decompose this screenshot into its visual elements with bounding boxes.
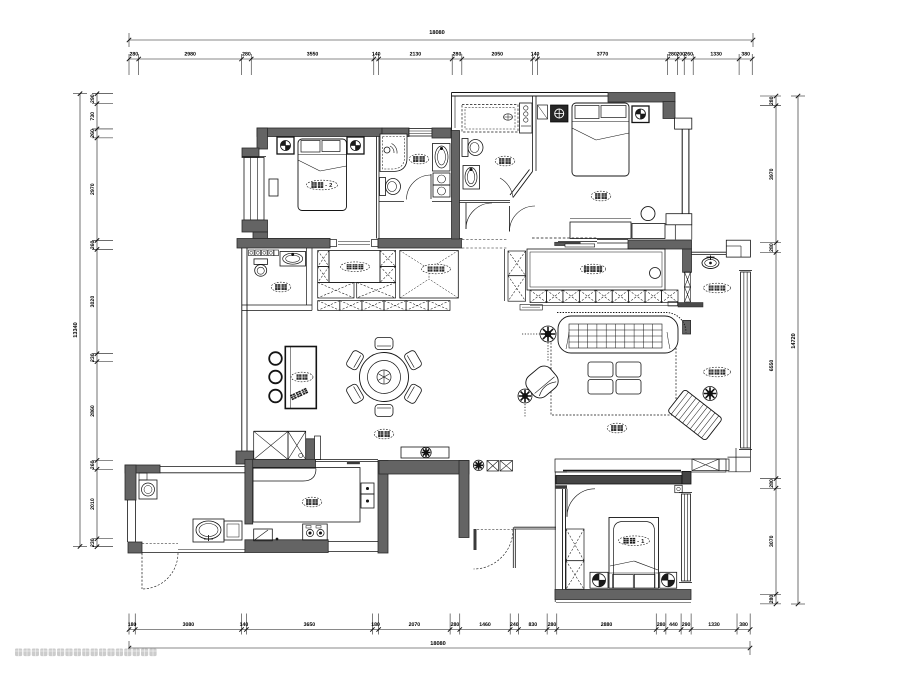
svg-text:-: -: [325, 183, 327, 189]
svg-text:380: 380: [741, 52, 750, 58]
svg-text:280: 280: [769, 479, 775, 488]
svg-text:280: 280: [451, 622, 460, 628]
svg-text:18080: 18080: [429, 30, 445, 36]
svg-text:260: 260: [90, 460, 96, 469]
svg-text:2980: 2980: [184, 52, 196, 58]
svg-text:290: 290: [90, 94, 96, 103]
svg-text:140: 140: [531, 52, 540, 58]
svg-text:2130: 2130: [410, 52, 422, 58]
svg-text:3080: 3080: [183, 622, 195, 628]
svg-text:290: 290: [682, 622, 691, 628]
svg-text:2050: 2050: [491, 52, 503, 58]
svg-text:3650: 3650: [304, 622, 316, 628]
svg-text:6550: 6550: [769, 360, 775, 372]
svg-text:440: 440: [669, 622, 678, 628]
svg-text:140: 140: [240, 622, 249, 628]
svg-text:14720: 14720: [791, 333, 797, 349]
svg-text:2070: 2070: [409, 622, 421, 628]
svg-text:260: 260: [90, 240, 96, 249]
svg-text:3770: 3770: [597, 52, 609, 58]
svg-text:2860: 2860: [90, 405, 96, 417]
svg-text:280: 280: [769, 243, 775, 252]
svg-text:1460: 1460: [479, 622, 491, 628]
svg-text:280: 280: [769, 595, 775, 604]
svg-text:260: 260: [90, 129, 96, 138]
svg-text:2880: 2880: [601, 622, 613, 628]
svg-text:3020: 3020: [90, 296, 96, 308]
svg-text:180: 180: [371, 622, 380, 628]
svg-text:230: 230: [90, 353, 96, 362]
svg-text:2010: 2010: [90, 498, 96, 510]
svg-text:280: 280: [453, 52, 462, 58]
svg-text:13340: 13340: [73, 322, 79, 338]
svg-text:1330: 1330: [708, 622, 720, 628]
svg-text:3070: 3070: [769, 535, 775, 547]
svg-text:260: 260: [684, 52, 693, 58]
svg-text:2: 2: [329, 182, 332, 189]
svg-text:830: 830: [528, 622, 537, 628]
svg-text:18080: 18080: [430, 641, 446, 647]
svg-text:3970: 3970: [769, 168, 775, 180]
svg-text:-: -: [637, 539, 639, 545]
svg-text:280: 280: [130, 52, 139, 58]
svg-text:280: 280: [242, 52, 251, 58]
svg-text:280: 280: [548, 622, 557, 628]
svg-text:730: 730: [90, 112, 96, 121]
svg-text:2970: 2970: [90, 183, 96, 195]
svg-text:240: 240: [510, 622, 519, 628]
svg-text:280: 280: [769, 96, 775, 105]
svg-text:140: 140: [372, 52, 381, 58]
svg-text:380: 380: [739, 622, 748, 628]
svg-text:180: 180: [128, 622, 137, 628]
svg-text:230: 230: [90, 538, 96, 547]
svg-text:1330: 1330: [710, 52, 722, 58]
svg-text:3550: 3550: [307, 52, 319, 58]
svg-text:280: 280: [657, 622, 666, 628]
